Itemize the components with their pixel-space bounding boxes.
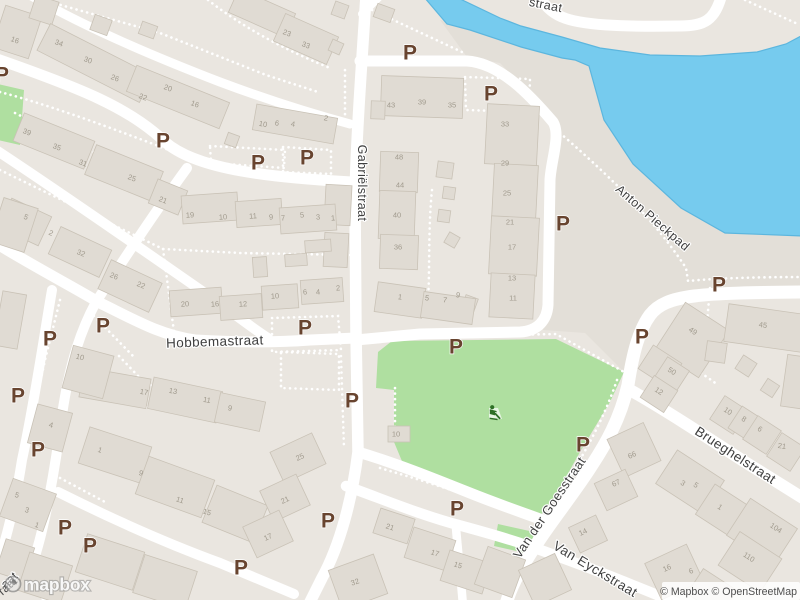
svg-text:39: 39	[418, 98, 426, 107]
svg-text:P: P	[556, 213, 570, 236]
svg-text:P: P	[635, 326, 649, 349]
svg-text:10: 10	[258, 119, 268, 129]
svg-text:10: 10	[271, 291, 280, 301]
svg-text:36: 36	[394, 243, 402, 252]
svg-text:P: P	[58, 517, 72, 540]
svg-text:P: P	[11, 385, 25, 408]
svg-text:P: P	[234, 557, 248, 580]
svg-text:17: 17	[139, 387, 149, 397]
svg-text:P: P	[96, 315, 110, 338]
svg-text:48: 48	[395, 153, 403, 162]
svg-text:P: P	[298, 317, 312, 340]
svg-text:7: 7	[281, 213, 286, 222]
svg-text:P: P	[31, 439, 45, 462]
svg-text:45: 45	[758, 320, 768, 330]
svg-text:10: 10	[219, 212, 228, 222]
svg-text:2: 2	[336, 283, 341, 292]
svg-text:35: 35	[448, 101, 456, 110]
svg-text:16: 16	[211, 299, 220, 309]
svg-text:P: P	[403, 42, 417, 65]
svg-text:P: P	[450, 498, 464, 521]
svg-text:11: 11	[202, 395, 211, 405]
svg-text:P: P	[0, 64, 9, 87]
svg-text:3: 3	[316, 212, 321, 221]
svg-text:P: P	[712, 274, 726, 297]
svg-text:9: 9	[269, 212, 274, 221]
svg-text:40: 40	[393, 211, 401, 220]
svg-text:11: 11	[509, 294, 517, 303]
svg-text:13: 13	[168, 386, 178, 396]
svg-text:P: P	[321, 510, 335, 533]
svg-text:20: 20	[181, 299, 190, 309]
svg-text:P: P	[449, 336, 463, 359]
svg-text:21: 21	[506, 218, 514, 227]
svg-text:P: P	[484, 83, 498, 106]
svg-text:33: 33	[501, 120, 509, 129]
svg-text:13: 13	[508, 274, 516, 283]
svg-text:17: 17	[508, 243, 516, 252]
svg-text:Gabriëlstraat: Gabriëlstraat	[355, 145, 369, 222]
svg-text:19: 19	[186, 210, 195, 220]
svg-text:P: P	[300, 147, 314, 170]
svg-text:44: 44	[396, 181, 404, 190]
svg-text:P: P	[251, 152, 265, 175]
svg-text:P: P	[345, 390, 359, 413]
svg-text:4: 4	[316, 287, 321, 296]
svg-text:© Mapbox © OpenStreetMap: © Mapbox © OpenStreetMap	[660, 586, 797, 598]
svg-text:29: 29	[501, 159, 509, 168]
svg-text:10: 10	[392, 430, 400, 439]
svg-text:25: 25	[503, 189, 511, 198]
svg-text:1: 1	[331, 213, 336, 222]
svg-text:21: 21	[777, 441, 787, 451]
svg-text:12: 12	[239, 299, 248, 309]
svg-text:11: 11	[249, 211, 257, 221]
svg-text:43: 43	[387, 101, 395, 110]
svg-text:P: P	[43, 328, 57, 351]
svg-text:mapbox: mapbox	[24, 575, 90, 595]
svg-text:P: P	[576, 434, 590, 457]
svg-text:P: P	[156, 130, 170, 153]
svg-text:P: P	[83, 535, 97, 558]
svg-text:5: 5	[300, 210, 305, 219]
svg-text:6: 6	[303, 287, 308, 296]
